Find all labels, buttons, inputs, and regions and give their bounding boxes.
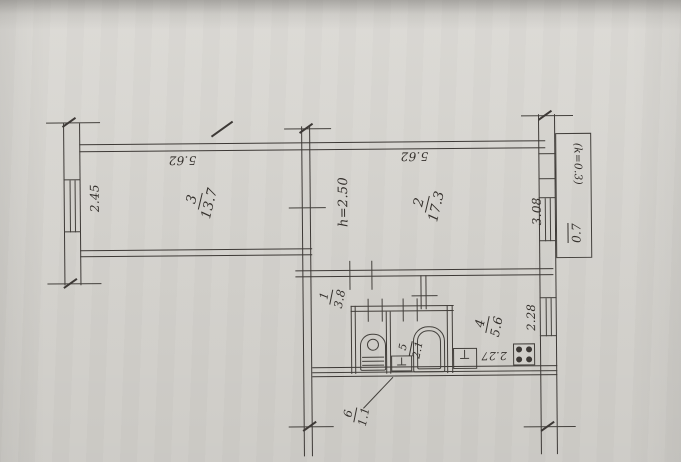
- dimension-tick: [289, 426, 334, 428]
- dimension-tick: [47, 283, 101, 285]
- toilet-icon: [367, 339, 379, 351]
- ceiling-height-note: h=2.50: [337, 177, 350, 227]
- dimension-room2-depth: 3.08: [531, 197, 543, 225]
- toilet-icon: [362, 365, 384, 367]
- kitchen-label: 4 5.6: [471, 312, 504, 338]
- dimension-room2-width: 5.62: [400, 150, 428, 162]
- sink-icon: [397, 364, 406, 365]
- room-area: 17.3: [424, 189, 447, 223]
- room-3-label: 3 13.7: [182, 182, 220, 220]
- sink-icon: [401, 357, 402, 364]
- door-opening-tick: [349, 261, 351, 290]
- toilet-icon: [362, 357, 384, 359]
- floor-plan: 3 13.7 2 17.3 1 3.8 4 5.6 5 2.1 6 1.1 5.…: [0, 0, 681, 462]
- door-opening-tick: [382, 299, 384, 322]
- dimension-kitchen-width: 2.27: [481, 350, 507, 361]
- wall: [63, 123, 81, 285]
- dimension-tick: [46, 122, 100, 124]
- sink-icon: [460, 358, 469, 359]
- dimension-room3-depth: 2.45: [89, 184, 101, 212]
- wall: [351, 306, 357, 374]
- toilet-icon: [362, 361, 384, 363]
- window-icon: [64, 179, 81, 181]
- stove-icon: [516, 346, 522, 352]
- door-opening-tick: [368, 299, 370, 322]
- dimension-tick: [524, 426, 576, 428]
- window-icon: [539, 240, 556, 242]
- wall: [79, 140, 545, 152]
- window-icon: [538, 153, 555, 155]
- window-icon: [540, 297, 557, 299]
- wall: [301, 126, 313, 456]
- window-icon: [540, 335, 557, 337]
- stove-icon: [516, 356, 522, 362]
- room-area: 3.8: [330, 288, 347, 310]
- window-icon: [64, 231, 81, 233]
- sink-icon: [464, 350, 465, 358]
- leader-line: [363, 377, 394, 409]
- window-icon: [539, 178, 556, 180]
- dimension-tick: [521, 115, 573, 117]
- dimension-tick: [211, 121, 233, 138]
- dimension-tick: [289, 207, 326, 209]
- dimension-tick: [284, 128, 331, 130]
- door-opening-tick: [412, 295, 438, 297]
- dimension-room3-width: 5.62: [168, 154, 196, 166]
- wc-label: 6 1.1: [340, 403, 371, 427]
- stove-icon: [526, 356, 532, 362]
- door-opening-tick: [417, 298, 419, 321]
- floor-plan-photo: 3 13.7 2 17.3 1 3.8 4 5.6 5 2.1 6 1.1 5.…: [0, 0, 681, 462]
- wall: [420, 275, 426, 309]
- balcony-area: 0.7: [567, 223, 582, 243]
- dimension-kitchen-depth: 2.28: [526, 304, 538, 331]
- door-opening-tick: [371, 261, 373, 290]
- door-opening-tick: [403, 298, 405, 321]
- room-area: 13.7: [197, 186, 220, 220]
- hallway-label: 1 3.8: [316, 285, 347, 309]
- stove-icon: [526, 346, 532, 352]
- room-2-label: 2 17.3: [409, 185, 447, 223]
- room-area: 5.6: [486, 315, 504, 338]
- wall: [80, 248, 312, 257]
- balcony-coefficient: (k=0.3): [572, 143, 583, 185]
- room-area: 1.1: [354, 406, 371, 428]
